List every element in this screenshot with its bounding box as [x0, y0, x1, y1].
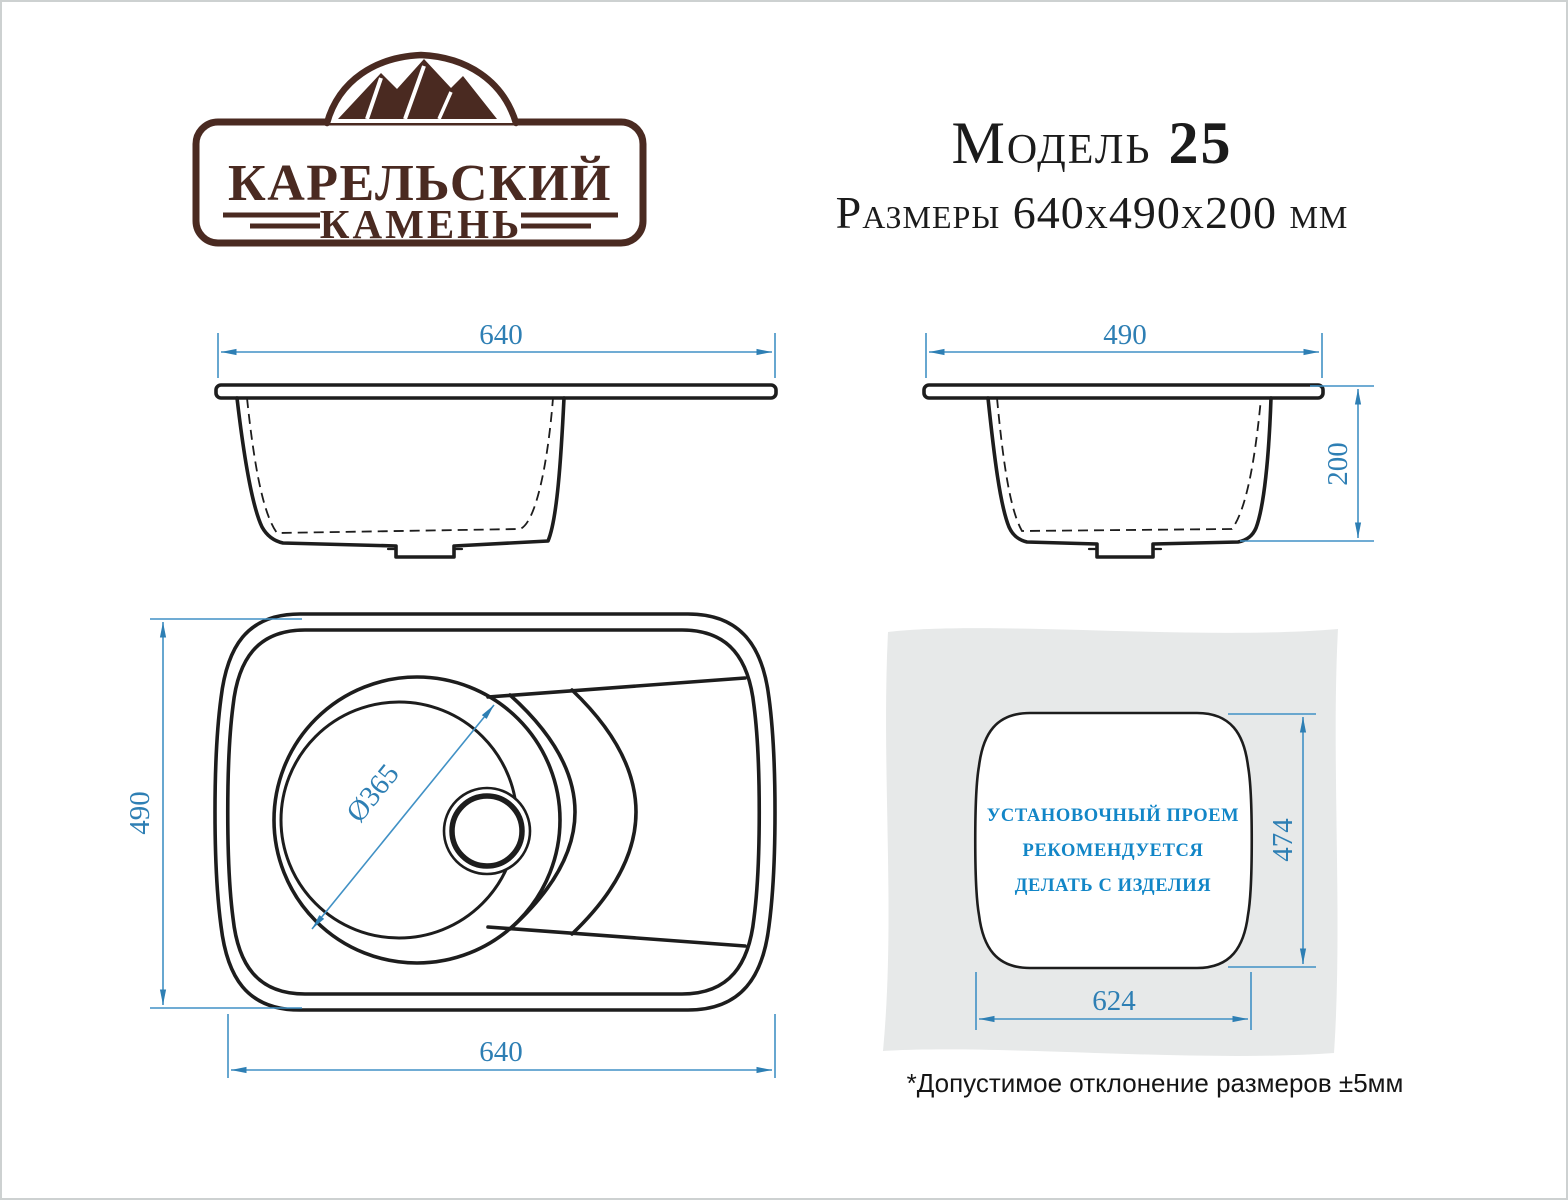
top-view: 490 640 Ø365	[124, 614, 775, 1078]
drawing-sheet: КАРЕЛЬСКИЙ КАМЕНЬ Модель 25 Размеры 640x…	[0, 0, 1568, 1200]
side-width-label: 490	[1103, 319, 1147, 351]
bowl-inner-dashed-profile	[247, 398, 553, 533]
brand-logo: КАРЕЛЬСКИЙ КАМЕНЬ	[196, 55, 643, 247]
side-section-view: 490 200	[924, 319, 1374, 557]
tolerance-footnote: *Допустимое отклонение размеров ±5мм	[907, 1068, 1404, 1098]
model-title: Модель 25	[952, 110, 1233, 176]
model-word: Модель	[952, 110, 1169, 176]
cutout-width-label: 624	[1092, 985, 1136, 1017]
topview-width-label: 640	[479, 1036, 523, 1068]
brand-line-2: КАМЕНЬ	[320, 201, 522, 247]
side-depth-label: 200	[1322, 442, 1354, 486]
dimensions-subtitle: Размеры 640x490x200 мм	[836, 187, 1349, 238]
install-note-line-2: РЕКОМЕНДУЕТСЯ	[1023, 841, 1204, 861]
title-block: Модель 25 Размеры 640x490x200 мм	[836, 110, 1349, 238]
drainboard-top-edge	[488, 678, 745, 697]
model-number: 25	[1168, 110, 1232, 176]
topview-height-label: 490	[124, 791, 156, 835]
bowl-diameter-label: Ø365	[340, 758, 405, 828]
front-section-view: 640	[216, 319, 776, 557]
install-note-line-3: ДЕЛАТЬ С ИЗДЕЛИЯ	[1015, 876, 1212, 896]
bowl-inner-dashed-profile	[997, 398, 1261, 531]
technical-drawing-canvas: КАРЕЛЬСКИЙ КАМЕНЬ Модель 25 Размеры 640x…	[0, 0, 1568, 1200]
drain-outer-ring	[444, 788, 530, 874]
front-width-label: 640	[479, 319, 523, 351]
sink-rim-profile	[924, 385, 1323, 398]
bowl-outer-profile	[988, 398, 1271, 557]
drainboard-ridge	[572, 690, 636, 934]
drainboard-bottom-edge	[488, 927, 745, 946]
installation-view: УСТАНОВОЧНЫЙ ПРОЕМ РЕКОМЕНДУЕТСЯ ДЕЛАТЬ …	[883, 628, 1338, 1056]
sink-rim-profile	[216, 385, 776, 398]
cutout-height-label: 474	[1267, 818, 1299, 862]
install-note-line-1: УСТАНОВОЧНЫЙ ПРОЕМ	[987, 804, 1239, 826]
